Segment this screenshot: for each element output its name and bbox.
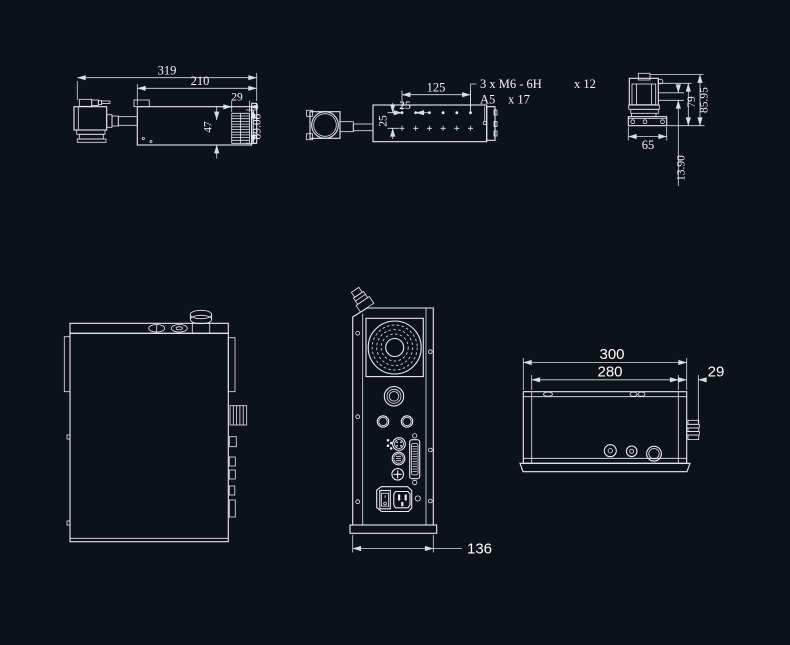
cross-connector [392,469,404,481]
dim-label-knob-depth: 29 [708,364,725,381]
indicator-leds [387,439,393,450]
cooling-fan [366,318,423,376]
dim-label-row-spacing: 25 [378,115,390,127]
galvo-head [74,99,137,142]
bottom-base [350,525,437,533]
box-side-view [64,310,246,541]
head-knob [98,101,101,105]
galvo-housing [74,107,107,130]
head-front-body [629,78,658,105]
dim-fin-width: 29 [220,92,259,113]
beam-coupler-top [340,122,353,132]
dim-label-overall-height: 85.95 [699,87,711,113]
dim-label-front-height: 47 [203,121,215,133]
db25-connector [410,434,420,485]
dim-label-hole-span: 125 [427,80,446,94]
right-rail [228,338,235,392]
beam-tube [118,117,137,126]
front-socket [626,446,637,457]
focus-lens-barrel [79,134,103,139]
fan-frame [366,318,423,376]
box-rear-view: 136 [348,285,492,557]
front-flange [629,105,660,109]
dim-base-width: 65 [628,127,666,152]
top-nozzle [638,73,650,80]
body-top-connector [134,100,149,107]
fan-grille [368,321,421,374]
head-side-view: 319 210 29 47 89.08 [74,64,264,159]
dim-row-spacing: 25 [378,103,400,139]
top-plate [70,323,228,333]
dim-label-body-height: 79 [686,96,698,108]
panel-screw [356,331,360,335]
galvo-head-top [307,110,374,139]
dim-beam-offset: 13.90 [659,85,688,187]
note-pin-depth: x 17 [508,93,530,107]
rear-panel-outline [353,308,434,525]
dim-label-body-length: 210 [191,74,210,88]
dim-label-body-width: 280 [597,363,622,380]
box-top-view: 300 280 29 [520,346,724,472]
dim-label-hole-offset: 25 [399,100,411,112]
db25-screw [413,480,417,484]
dim-depth: 136 [353,535,492,558]
base-screw [661,120,665,124]
dim-label-base-width: 65 [642,138,655,152]
side-port [229,486,235,495]
side-adjust-knob [230,406,247,425]
edge-button [630,392,637,396]
lens-flange [77,139,106,142]
lens-mount [77,130,105,134]
dim-front-height: 47 [203,106,217,159]
edge-button [544,392,553,396]
multipin-connector [392,452,405,465]
edge-button [638,392,645,396]
base-plate [520,463,690,471]
beam-coupler [112,116,118,126]
aviation-connector [384,387,403,406]
panel-screw [356,500,360,504]
front-socket [604,445,616,457]
side-port [229,437,236,447]
mounting-holes-row2 [400,126,474,131]
galvo-motor-circle-inner [314,114,337,137]
dim-hole-offset: 25 [393,100,432,113]
galvo-bracket [310,112,340,139]
panel-screw [428,448,432,452]
base-screw [631,120,635,124]
note-pin-hole: A5 [480,93,495,107]
emergency-stop-knob [190,310,211,333]
side-port [229,470,235,479]
dim-label-depth: 136 [467,541,492,558]
dim-label-overall-width: 300 [599,346,624,363]
beam-coupler [107,115,112,128]
beam-tube-top [353,124,373,131]
side-port [229,500,235,517]
screw-dot [150,141,152,143]
panel-screw [428,350,432,354]
galvo-motor-circle [312,112,339,139]
signal-connector [393,438,406,451]
power-inlet-module [377,487,412,512]
side-knob-top [687,420,700,439]
lens-front [632,84,656,105]
note-thread: 3 x M6 - 6H [480,77,542,91]
screw-dot [142,137,144,139]
note-thread-depth: x 12 [574,77,596,91]
pin-hole [483,121,486,124]
cad-drawing-canvas: 319 210 29 47 89.08 [0,0,790,645]
head-top-view: 125 25 25 3 x M6 - 6H x 12 A5 x 17 [307,77,596,142]
box-body [70,333,228,541]
dim-knob-depth: 29 [676,364,724,424]
head-knob [92,100,99,106]
dim-label-fin-width: 29 [231,92,243,104]
dim-label-rear-height: 89.08 [252,113,264,139]
panel-screw [356,415,360,419]
mounting-holes-row1 [401,111,472,114]
db25-screw [413,434,417,438]
dim-label-beam-offset: 13.90 [676,155,688,181]
fan-hub [386,339,404,357]
technical-drawing: 319 210 29 47 89.08 [0,0,790,645]
panel-screw [428,499,432,503]
dim-label-overall-length: 319 [158,64,177,78]
base-screw [643,120,647,124]
laser-body-outline [137,107,251,145]
cooling-fins [232,113,250,143]
head-knob [79,99,91,106]
fuse-hole [415,496,420,501]
laser-body-top-outline [373,105,487,142]
left-rail [64,337,70,392]
side-port [229,457,235,466]
head-bar [102,101,110,103]
head-front-view: 65 79 85.95 13.90 [628,73,710,186]
dim-body-width: 280 [532,363,679,390]
front-step [631,109,659,113]
top-oval-indicator [171,325,187,333]
dim-overall-length: 319 [77,64,256,102]
